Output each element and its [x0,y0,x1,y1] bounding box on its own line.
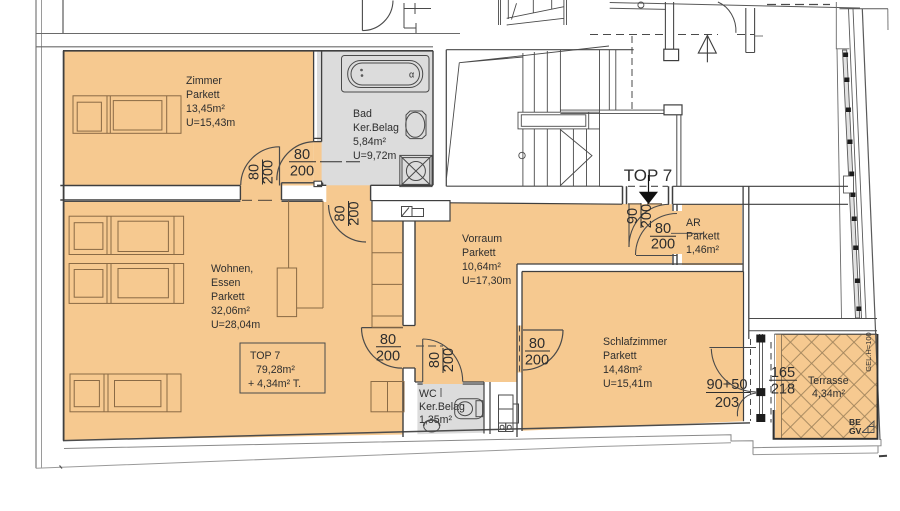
svg-text:α: α [409,70,414,80]
svg-text:Bad: Bad [353,108,372,120]
svg-text:Ker.Belag: Ker.Belag [353,122,399,134]
svg-text:1,46m²: 1,46m² [686,244,719,256]
svg-text:Vorraum: Vorraum [462,233,502,245]
svg-text:200: 200 [525,353,549,369]
svg-text:80: 80 [655,221,671,237]
svg-text:200: 200 [651,237,675,253]
svg-text:32,06m²: 32,06m² [211,305,250,317]
svg-text:13,45m²: 13,45m² [186,103,225,115]
svg-text:U=15,43m: U=15,43m [186,117,235,129]
svg-text:165: 165 [771,365,795,381]
svg-text:218: 218 [771,382,795,398]
svg-text:U=15,41m: U=15,41m [603,378,652,390]
svg-text:200: 200 [290,164,314,180]
svg-text:203: 203 [715,395,739,411]
svg-text:79,28m²: 79,28m² [256,364,295,376]
svg-text:TOP 7: TOP 7 [250,350,280,362]
svg-text:Parkett: Parkett [603,350,637,362]
svg-text:80: 80 [529,336,545,352]
svg-text:GV: GV [849,426,862,436]
svg-text:Parkett: Parkett [186,89,220,101]
svg-text:5,84m²: 5,84m² [353,136,386,148]
svg-text:90+50: 90+50 [707,377,748,393]
svg-text:4,34m²: 4,34m² [812,388,845,400]
svg-text:Schlafzimmer: Schlafzimmer [603,336,668,348]
svg-text:80: 80 [380,332,396,348]
svg-text:AR: AR [686,217,701,229]
svg-text:Parkett: Parkett [686,231,720,243]
svg-text:GEL.H=100: GEL.H=100 [864,332,873,371]
svg-text:U=17,30m: U=17,30m [462,275,511,287]
svg-text:U=28,04m: U=28,04m [211,319,260,331]
svg-text:U=9,72m: U=9,72m [353,150,396,162]
svg-text:+ 4,34m² T.: + 4,34m² T. [248,378,301,390]
svg-text:Essen: Essen [211,277,241,289]
svg-text:Parkett: Parkett [211,291,245,303]
svg-text:14,48m²: 14,48m² [603,364,642,376]
svg-text:Zimmer: Zimmer [186,75,222,87]
svg-text:10,64m²: 10,64m² [462,261,501,273]
svg-text:Parkett: Parkett [462,247,496,259]
svg-text:WC: WC [419,388,437,400]
svg-text:Terrasse: Terrasse [808,375,849,387]
svg-text:80: 80 [294,147,310,163]
svg-text:200: 200 [376,349,400,365]
svg-text:Wohnen,: Wohnen, [211,263,253,275]
